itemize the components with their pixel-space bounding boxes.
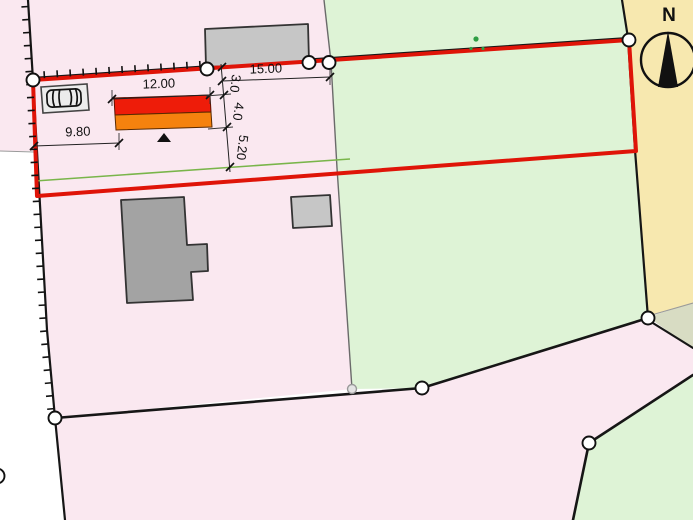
survey-point (201, 63, 214, 76)
building-small-shed (291, 195, 332, 228)
boundary-left-strip-bottom (0, 151, 34, 152)
site-plan-drawing: 12.00 15.00 9.80 3.0 4.0 5.20 (0, 0, 693, 520)
north-label: N (662, 5, 676, 26)
survey-point (642, 312, 655, 325)
survey-point (623, 34, 636, 47)
survey-point (323, 56, 336, 69)
dimension-label-9-80m: 9.80 (65, 124, 91, 140)
dimension-label-5-20m: 5.20 (233, 134, 251, 161)
survey-point-minor (348, 385, 357, 394)
dimension-label-12m: 12.00 (142, 75, 175, 91)
dimension-label-4m: 4.0 (230, 102, 247, 122)
survey-point (27, 74, 40, 87)
survey-point (49, 412, 62, 425)
survey-point (416, 382, 429, 395)
survey-point (303, 56, 316, 69)
proposed-building-orange (115, 112, 212, 130)
survey-point-edge (0, 469, 5, 484)
site-plan-canvas: 12.00 15.00 9.80 3.0 4.0 5.20 (0, 0, 693, 520)
car-icon (41, 84, 89, 113)
survey-point (583, 437, 596, 450)
dimension-label-15m: 15.00 (249, 60, 282, 76)
dimension-label-3m: 3.0 (227, 74, 244, 94)
